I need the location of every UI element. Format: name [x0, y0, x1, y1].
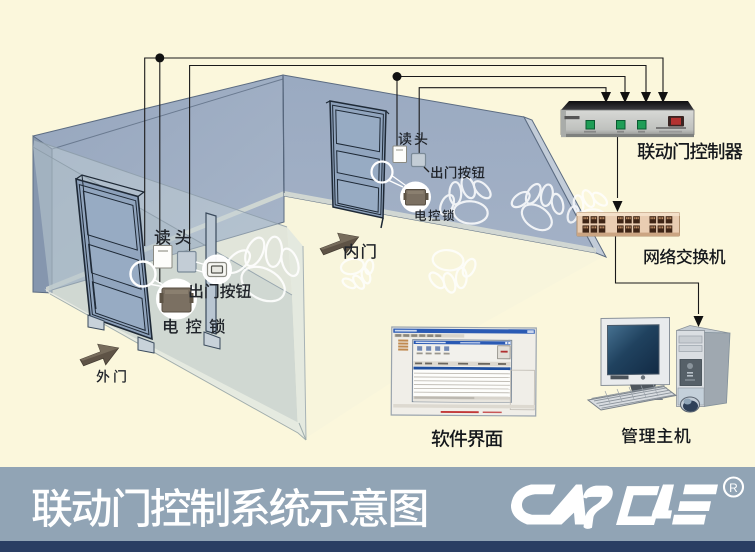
svg-text:R: R: [729, 481, 738, 495]
